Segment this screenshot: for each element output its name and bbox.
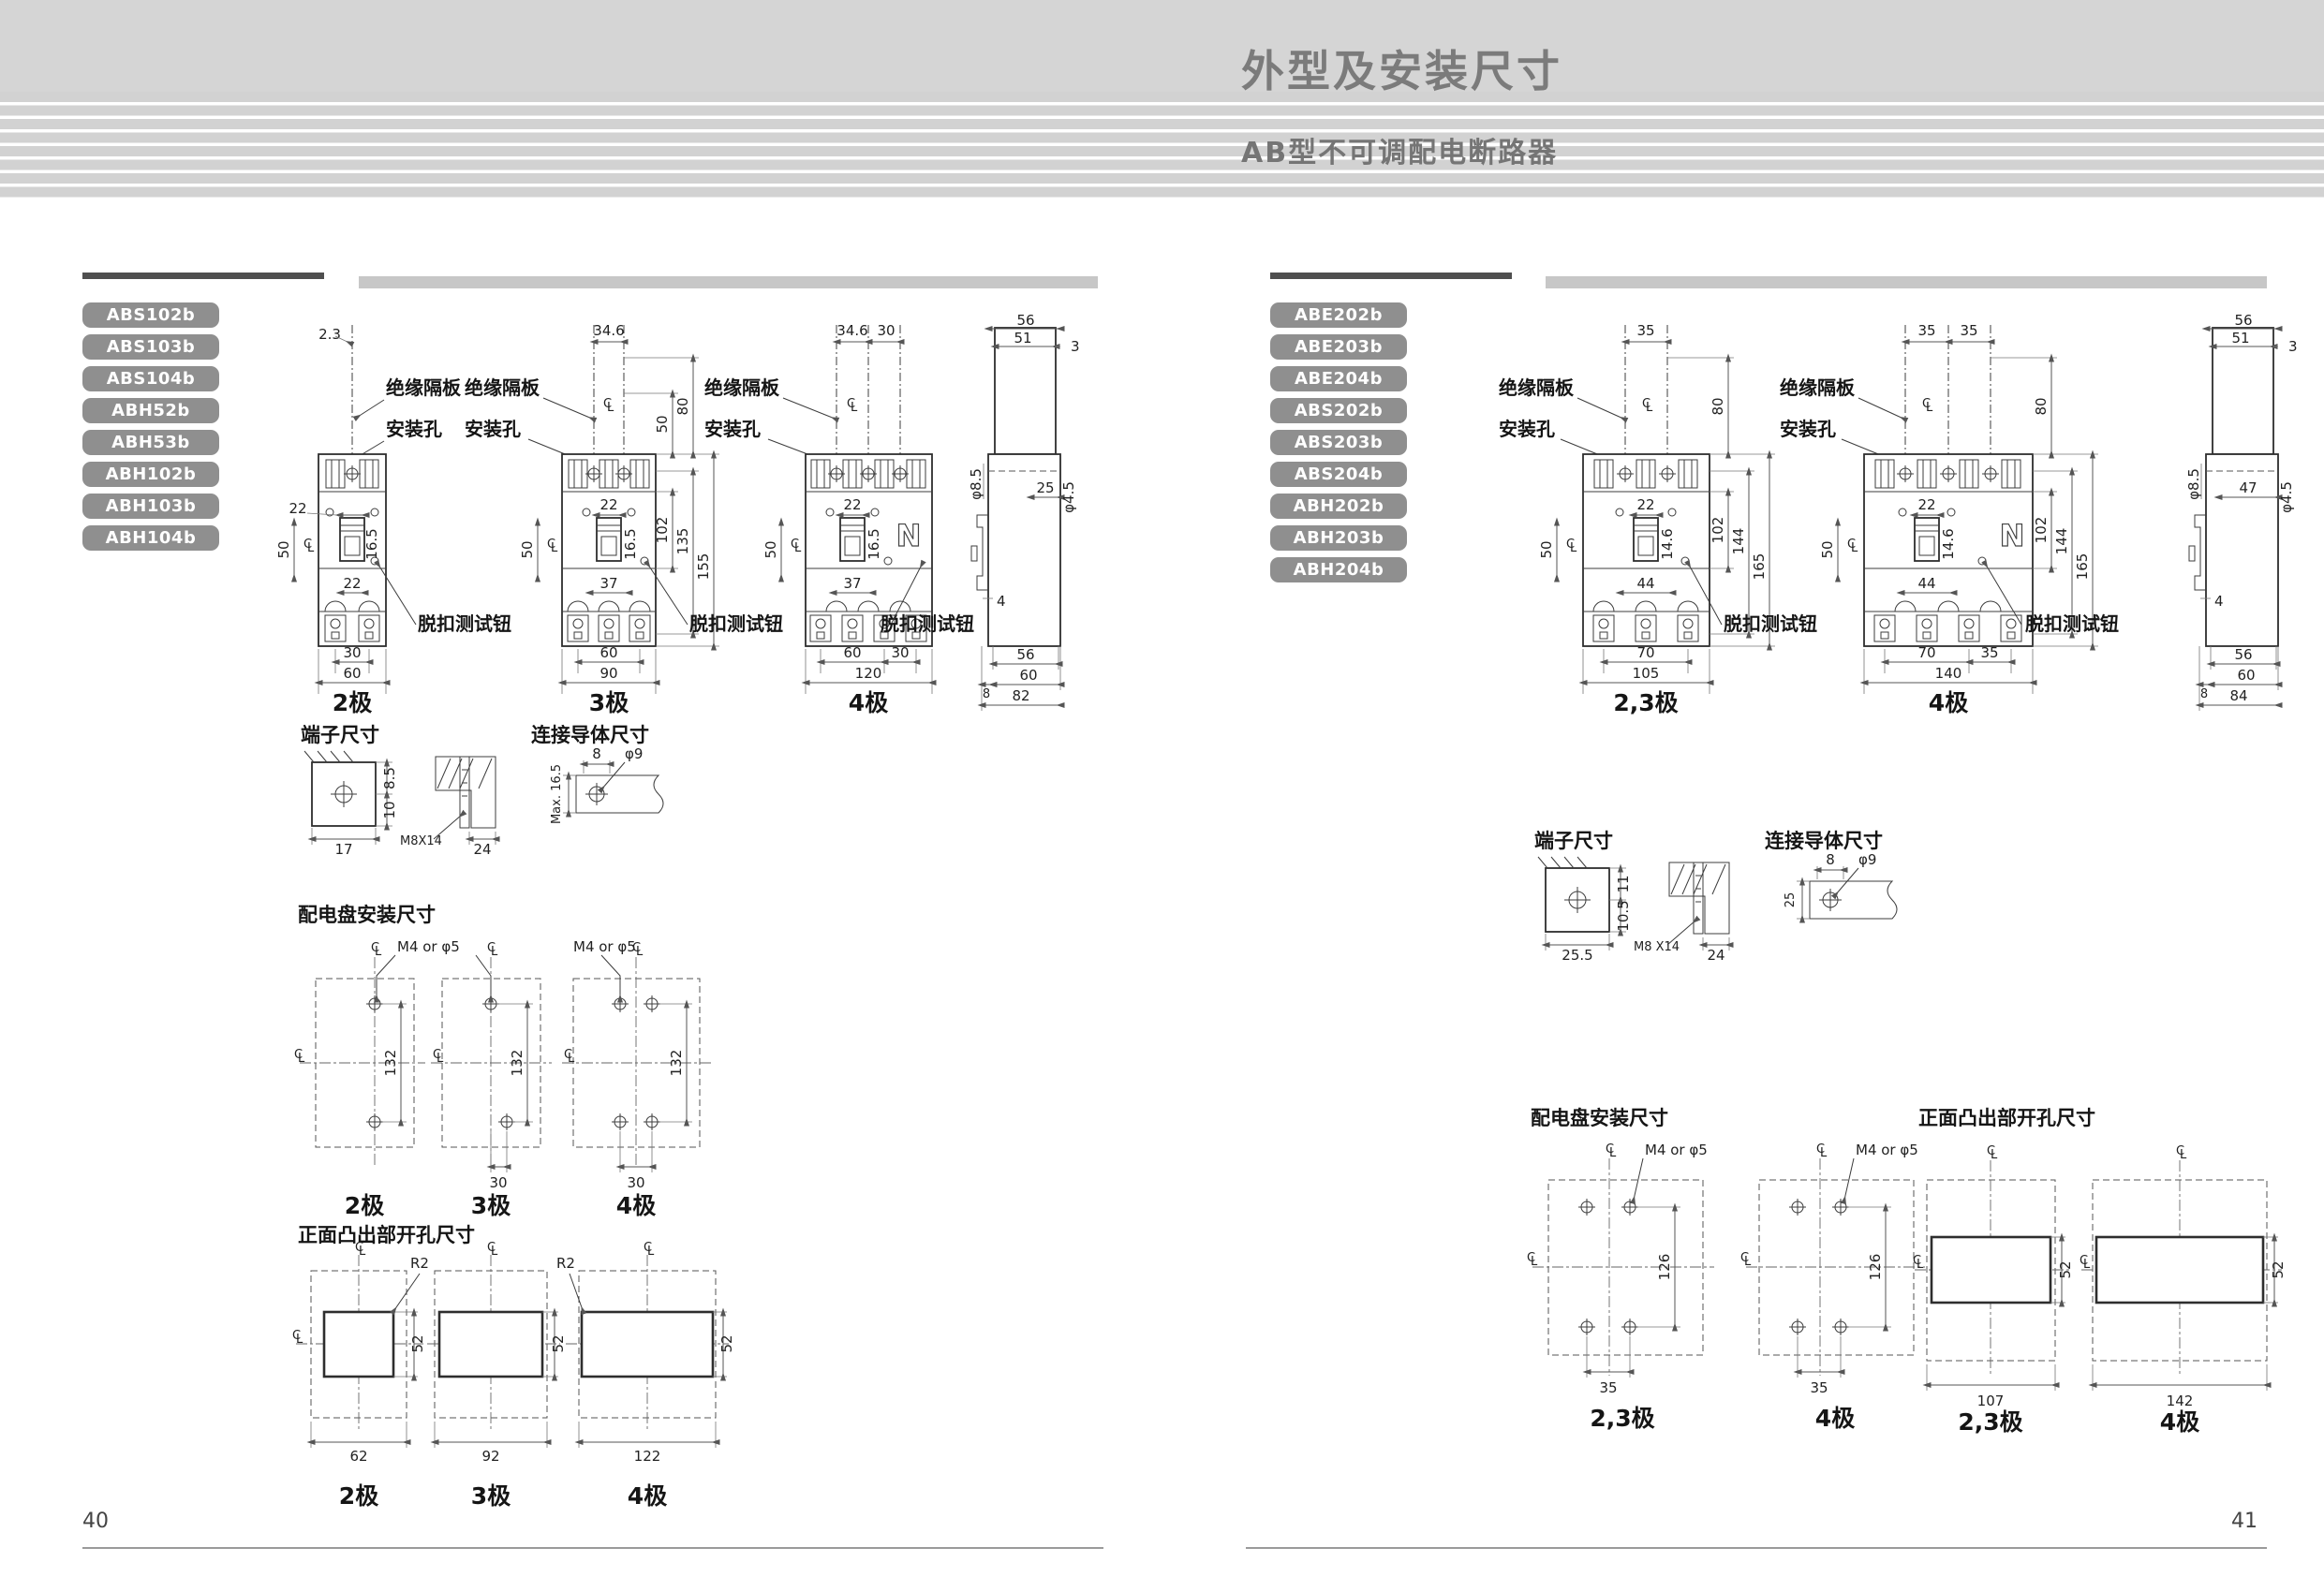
dim-barrier-pitch-2: 30 <box>877 322 895 339</box>
left-front-cutout: 正面凸出部开孔尺寸 52 62 2极 52 92 3极 52 <box>292 1219 751 1511</box>
dim-30: 30 <box>489 1174 507 1191</box>
dim-84: 84 <box>2229 687 2247 704</box>
dim-conductor-w: 8 <box>592 745 601 762</box>
left-side-view: 56 51 3 φ8.5 25 φ4.5 4 56 8 60 82 <box>968 312 1080 711</box>
mounting-hole-label: 安装孔 <box>1780 418 1836 440</box>
right-front-cutout: 正面凸出部开孔尺寸 52 107 2,3极 52 142 4极 <box>1913 1100 2324 1437</box>
dim-51: 51 <box>2231 330 2249 346</box>
model-badge: ABH103b <box>82 494 219 519</box>
dim-50: 50 <box>762 540 779 558</box>
dim-3: 3 <box>2288 338 2298 355</box>
dim-35: 35 <box>1980 644 1998 661</box>
conductor-size-drawing: 连接导体尺寸 8 φ9 Max. 16.5 <box>531 724 663 824</box>
mounting-hole-label: 安装孔 <box>386 418 442 440</box>
dim-conductor-w: 8 <box>1826 851 1835 868</box>
dim-phi85: φ8.5 <box>2185 468 2202 500</box>
panel-caption: 4极 <box>1815 1405 1855 1432</box>
model-badge: ABH104b <box>82 525 219 551</box>
page-subtitle: AB型不可调配电断路器 <box>1241 129 1558 170</box>
panel-4pole: 126 35 4极 <box>1740 1142 1925 1432</box>
dim-70: 70 <box>1917 644 1935 661</box>
radius-label: R2 <box>410 1255 429 1272</box>
dim-56-bottom: 56 <box>1016 646 1034 663</box>
left-outline-drawings: 2.3 绝缘隔板 安装孔 22 16.5 50 22 30 60 2极 脱扣测试… <box>281 314 1124 716</box>
model-badge: ABH102b <box>82 462 219 487</box>
dim-phi45: φ4.5 <box>1060 481 1077 513</box>
cutout-caption: 2极 <box>339 1482 378 1510</box>
dim-80: 80 <box>674 397 691 415</box>
dim-22: 22 <box>289 500 306 517</box>
dim-82: 82 <box>1012 687 1029 704</box>
dim-16-5: 16.5 <box>363 528 380 559</box>
dim-155: 155 <box>695 553 712 581</box>
dim-24: 24 <box>1707 947 1724 964</box>
left-4pole-drawing: 34.6 30 绝缘隔板 安装孔 N 22 16.5 50 37 60 30 <box>704 322 974 716</box>
dim-conductor-hole: φ9 <box>1858 851 1876 868</box>
dim-50: 50 <box>519 540 536 558</box>
left-section-rule-dark <box>82 273 324 279</box>
model-badge: ABS102b <box>82 302 219 328</box>
screw-spec-label: M4 or φ5 <box>1645 1142 1708 1158</box>
trip-test-label: 脱扣测试钮 <box>689 612 783 635</box>
dim-4: 4 <box>2214 593 2224 610</box>
dim-80: 80 <box>1710 397 1726 415</box>
dim-14-6: 14.6 <box>1659 528 1676 559</box>
dim-44: 44 <box>1636 575 1654 592</box>
dim-142: 142 <box>2167 1393 2194 1409</box>
dim-60: 60 <box>343 665 361 682</box>
dim-90: 90 <box>600 665 617 682</box>
terminal-size-drawing: 端子尺寸 25.5 11 10.5 <box>1534 830 1632 964</box>
panel-2pole: 132 2极 <box>294 941 425 1219</box>
dim-30: 30 <box>627 1174 644 1191</box>
front-cutout-title: 正面凸出部开孔尺寸 <box>298 1224 475 1246</box>
dim-phi45: φ4.5 <box>2278 481 2295 513</box>
pole-caption: 4极 <box>1929 689 1968 716</box>
cutout-23pole: 52 107 2,3极 <box>1913 1144 2074 1436</box>
screw-spec-label: M4 or φ5 <box>573 938 636 955</box>
panel-caption: 3极 <box>471 1192 511 1219</box>
insulation-barrier-label: 绝缘隔板 <box>704 376 780 399</box>
dim-51: 51 <box>1014 330 1031 346</box>
dim-37: 37 <box>843 575 861 592</box>
insulation-barrier-label: 绝缘隔板 <box>1499 376 1575 399</box>
model-badge: ABS203b <box>1270 430 1407 455</box>
panel-caption: 4极 <box>616 1192 656 1219</box>
dim-60: 60 <box>1019 667 1037 684</box>
dim-102: 102 <box>2033 517 2050 544</box>
trip-test-label: 脱扣测试钮 <box>881 612 974 635</box>
insulation-barrier-label: 绝缘隔板 <box>465 376 540 399</box>
terminal-size-title: 端子尺寸 <box>301 724 379 746</box>
dim-52: 52 <box>550 1334 567 1352</box>
screw-spec-label: M4 or φ5 <box>397 938 460 955</box>
dim-105: 105 <box>1633 665 1660 682</box>
dim-below-toggle: 22 <box>343 575 361 592</box>
model-badge: ABE202b <box>1270 302 1407 328</box>
right-footer-rule <box>1246 1547 2267 1549</box>
pole-caption: 2,3极 <box>1613 689 1678 716</box>
right-page-number: 41 <box>2231 1510 2257 1533</box>
model-badge: ABH204b <box>1270 557 1407 582</box>
left-page-number: 40 <box>82 1510 109 1533</box>
dim-52: 52 <box>718 1334 735 1352</box>
dim-3: 3 <box>1071 338 1080 355</box>
dim-37: 37 <box>600 575 617 592</box>
right-23pole-drawing: 35 绝缘隔板 安装孔 22 14.6 50 44 80 102 1 <box>1499 322 1817 716</box>
dim-50: 50 <box>1819 540 1836 558</box>
dim-35: 35 <box>1810 1379 1828 1396</box>
cutout-3pole: 52 92 3极 <box>427 1241 567 1510</box>
panel-caption: 2极 <box>345 1192 384 1219</box>
dim-56-top: 56 <box>2234 312 2252 329</box>
screw-spec-label: M4 or φ5 <box>1856 1142 1918 1158</box>
mounting-hole-label: 安装孔 <box>704 418 761 440</box>
dim-56-bottom: 56 <box>2234 646 2252 663</box>
dim-70: 70 <box>1636 644 1654 661</box>
header-band <box>0 0 2324 92</box>
dim-52: 52 <box>409 1334 426 1352</box>
panel-23pole: 126 35 2,3极 <box>1527 1142 1714 1432</box>
dim-122: 122 <box>634 1448 661 1465</box>
cutout-caption: 3极 <box>471 1482 511 1510</box>
trip-test-label: 脱扣测试钮 <box>2025 612 2119 635</box>
model-badge: ABS202b <box>1270 398 1407 423</box>
dim-phi85: φ8.5 <box>968 468 984 500</box>
dim-terminal-h1: 8.5 <box>381 767 398 789</box>
conductor-size-title: 连接导体尺寸 <box>1765 830 1883 852</box>
left-model-list: ABS102b ABS103b ABS104b ABH52b ABH53b AB… <box>82 302 219 551</box>
conductor-size-title: 连接导体尺寸 <box>531 724 649 746</box>
cutout-caption: 4极 <box>628 1482 667 1510</box>
dim-165: 165 <box>2074 553 2091 581</box>
right-section-rule-light <box>1546 276 2267 288</box>
trip-test-label: 脱扣测试钮 <box>1724 612 1817 635</box>
panel-caption: 2,3极 <box>1590 1405 1654 1432</box>
panel-mounting-title: 配电盘安装尺寸 <box>1531 1107 1668 1129</box>
dim-102: 102 <box>1710 517 1726 544</box>
model-badge: ABS103b <box>82 334 219 360</box>
cutout-4pole: 52 142 4极 <box>2080 1144 2287 1436</box>
dim-terminal-h1: 11 <box>1615 875 1632 892</box>
dim-22: 22 <box>600 496 617 513</box>
dim-conductor-h: 25 <box>1784 892 1798 908</box>
dim-52: 52 <box>2270 1260 2287 1278</box>
dim-107: 107 <box>1977 1393 2005 1409</box>
neutral-pole-mark: N <box>2000 518 2025 553</box>
dim-144: 144 <box>1730 528 1747 555</box>
dim-132: 132 <box>509 1050 525 1077</box>
model-badge: ABS104b <box>82 366 219 391</box>
terminal-size-title: 端子尺寸 <box>1534 830 1613 852</box>
dim-126: 126 <box>1656 1254 1673 1281</box>
page-title: 外型及安装尺寸 <box>1241 37 1562 99</box>
model-badge: ABS204b <box>1270 462 1407 487</box>
dim-barrier-pitch: 34.6 <box>593 322 624 339</box>
dim-50: 50 <box>1538 540 1555 558</box>
dim-22: 22 <box>1636 496 1654 513</box>
terminal-screw-drawing: M8X14 24 <box>400 757 496 858</box>
model-badge: ABE203b <box>1270 334 1407 360</box>
model-badge: ABH202b <box>1270 494 1407 519</box>
left-panel-mounting: 配电盘安装尺寸 132 2极 132 30 3极 132 <box>292 899 742 1222</box>
dim-50: 50 <box>275 540 292 558</box>
pole-caption: 2极 <box>333 689 372 716</box>
dim-conductor-hole: φ9 <box>625 745 643 762</box>
dim-60: 60 <box>2237 667 2255 684</box>
radius-label: R2 <box>556 1255 575 1272</box>
insulation-barrier-label: 绝缘隔板 <box>1780 376 1856 399</box>
dim-30: 30 <box>343 644 361 661</box>
dim-barrier-thickness: 2.3 <box>318 326 341 343</box>
terminal-size-drawing: 端子尺寸 17 8.5 10 <box>301 724 398 858</box>
model-badge: ABH203b <box>1270 525 1407 551</box>
terminal-screw-drawing: M8 X14 24 <box>1634 862 1729 964</box>
cutout-caption: 2,3极 <box>1958 1408 2022 1436</box>
dim-80: 80 <box>2033 397 2050 415</box>
dim-barrier-pitch: 35 <box>1636 322 1654 339</box>
insulation-barrier-label: 绝缘隔板 <box>386 376 462 399</box>
dim-terminal-h2: 10 <box>381 801 398 818</box>
dim-56-top: 56 <box>1016 312 1034 329</box>
right-model-list: ABE202b ABE203b ABE204b ABS202b ABS203b … <box>1270 302 1407 582</box>
dim-16-5: 16.5 <box>866 528 882 559</box>
dim-140: 140 <box>1935 665 1962 682</box>
dim-terminal-h2: 10.5 <box>1615 900 1632 931</box>
dim-22: 22 <box>1917 496 1935 513</box>
dim-24: 24 <box>473 841 491 858</box>
left-section-rule-light <box>359 276 1098 288</box>
dim-102: 102 <box>654 517 671 544</box>
right-section-rule-dark <box>1270 273 1512 279</box>
mounting-hole-label: 安装孔 <box>1499 418 1555 440</box>
dim-47: 47 <box>2239 479 2257 496</box>
dim-135: 135 <box>674 528 691 555</box>
dim-132: 132 <box>382 1050 399 1077</box>
thread-spec: M8X14 <box>400 834 442 848</box>
dim-120: 120 <box>855 665 882 682</box>
dim-terminal-width: 25.5 <box>1562 947 1592 964</box>
trip-test-label: 脱扣测试钮 <box>418 612 511 635</box>
dim-4: 4 <box>997 593 1006 610</box>
dim-126: 126 <box>1867 1254 1884 1281</box>
dim-60: 60 <box>600 644 617 661</box>
dim-terminal-width: 17 <box>334 841 352 858</box>
dim-30: 30 <box>891 644 909 661</box>
neutral-pole-mark: N <box>896 518 922 553</box>
dim-25: 25 <box>1036 479 1054 496</box>
dim-52: 52 <box>2057 1260 2074 1278</box>
cutout-2pole: 52 62 2极 <box>292 1241 426 1510</box>
dim-barrier-pitch-2: 35 <box>1960 322 1977 339</box>
left-footer-rule <box>82 1547 1103 1549</box>
dim-8: 8 <box>983 687 990 701</box>
dim-barrier-pitch-1: 34.6 <box>836 322 867 339</box>
header-stripes <box>0 92 2324 198</box>
left-terminal-section: 端子尺寸 17 8.5 10 M8X14 24 连接导体尺寸 8 φ9 <box>295 723 913 859</box>
dim-conductor-h: Max. 16.5 <box>550 764 564 824</box>
panel-mounting-title: 配电盘安装尺寸 <box>298 904 436 926</box>
dim-60: 60 <box>843 644 861 661</box>
cutout-4pole: 52 122 4极 <box>566 1241 735 1510</box>
panel-4pole: 132 30 4极 <box>562 941 711 1219</box>
right-side-view: 56 51 3 φ8.5 47 φ4.5 4 56 8 60 84 <box>2185 312 2298 711</box>
dim-92: 92 <box>481 1448 499 1465</box>
dim-165: 165 <box>1751 553 1768 581</box>
catalog-spread: { "header": { "title": "外型及安装尺寸", "subti… <box>0 0 2324 1577</box>
dim-8: 8 <box>2200 687 2208 701</box>
thread-spec: M8 X14 <box>1634 940 1680 954</box>
model-badge: ABH52b <box>82 398 219 423</box>
dim-22: 22 <box>843 496 861 513</box>
pole-caption: 3极 <box>589 689 629 716</box>
dim-35: 35 <box>1599 1379 1617 1396</box>
right-4pole-drawing: 35 35 绝缘隔板 安装孔 N 22 14.6 50 44 80 <box>1780 322 2119 716</box>
dim-16-5: 16.5 <box>622 528 639 559</box>
cutout-caption: 4极 <box>2160 1408 2199 1436</box>
dim-r50: 50 <box>654 415 671 433</box>
right-outline-drawings: 35 绝缘隔板 安装孔 22 14.6 50 44 80 102 1 <box>1499 314 2323 716</box>
dim-44: 44 <box>1917 575 1935 592</box>
dim-132: 132 <box>668 1050 685 1077</box>
front-cutout-title: 正面凸出部开孔尺寸 <box>1918 1107 2095 1129</box>
pole-caption: 4极 <box>849 689 888 716</box>
right-terminal-section: 端子尺寸 25.5 11 10.5 M8 X14 24 连接导体尺寸 8 φ9 <box>1529 829 2147 965</box>
dim-14-6: 14.6 <box>1940 528 1957 559</box>
model-badge: ABH53b <box>82 430 219 455</box>
dim-144: 144 <box>2053 528 2070 555</box>
conductor-size-drawing: 连接导体尺寸 8 φ9 25 <box>1765 830 1897 919</box>
dim-62: 62 <box>349 1448 367 1465</box>
dim-barrier-pitch-1: 35 <box>1917 322 1935 339</box>
mounting-hole-label: 安装孔 <box>465 418 521 440</box>
model-badge: ABE204b <box>1270 366 1407 391</box>
